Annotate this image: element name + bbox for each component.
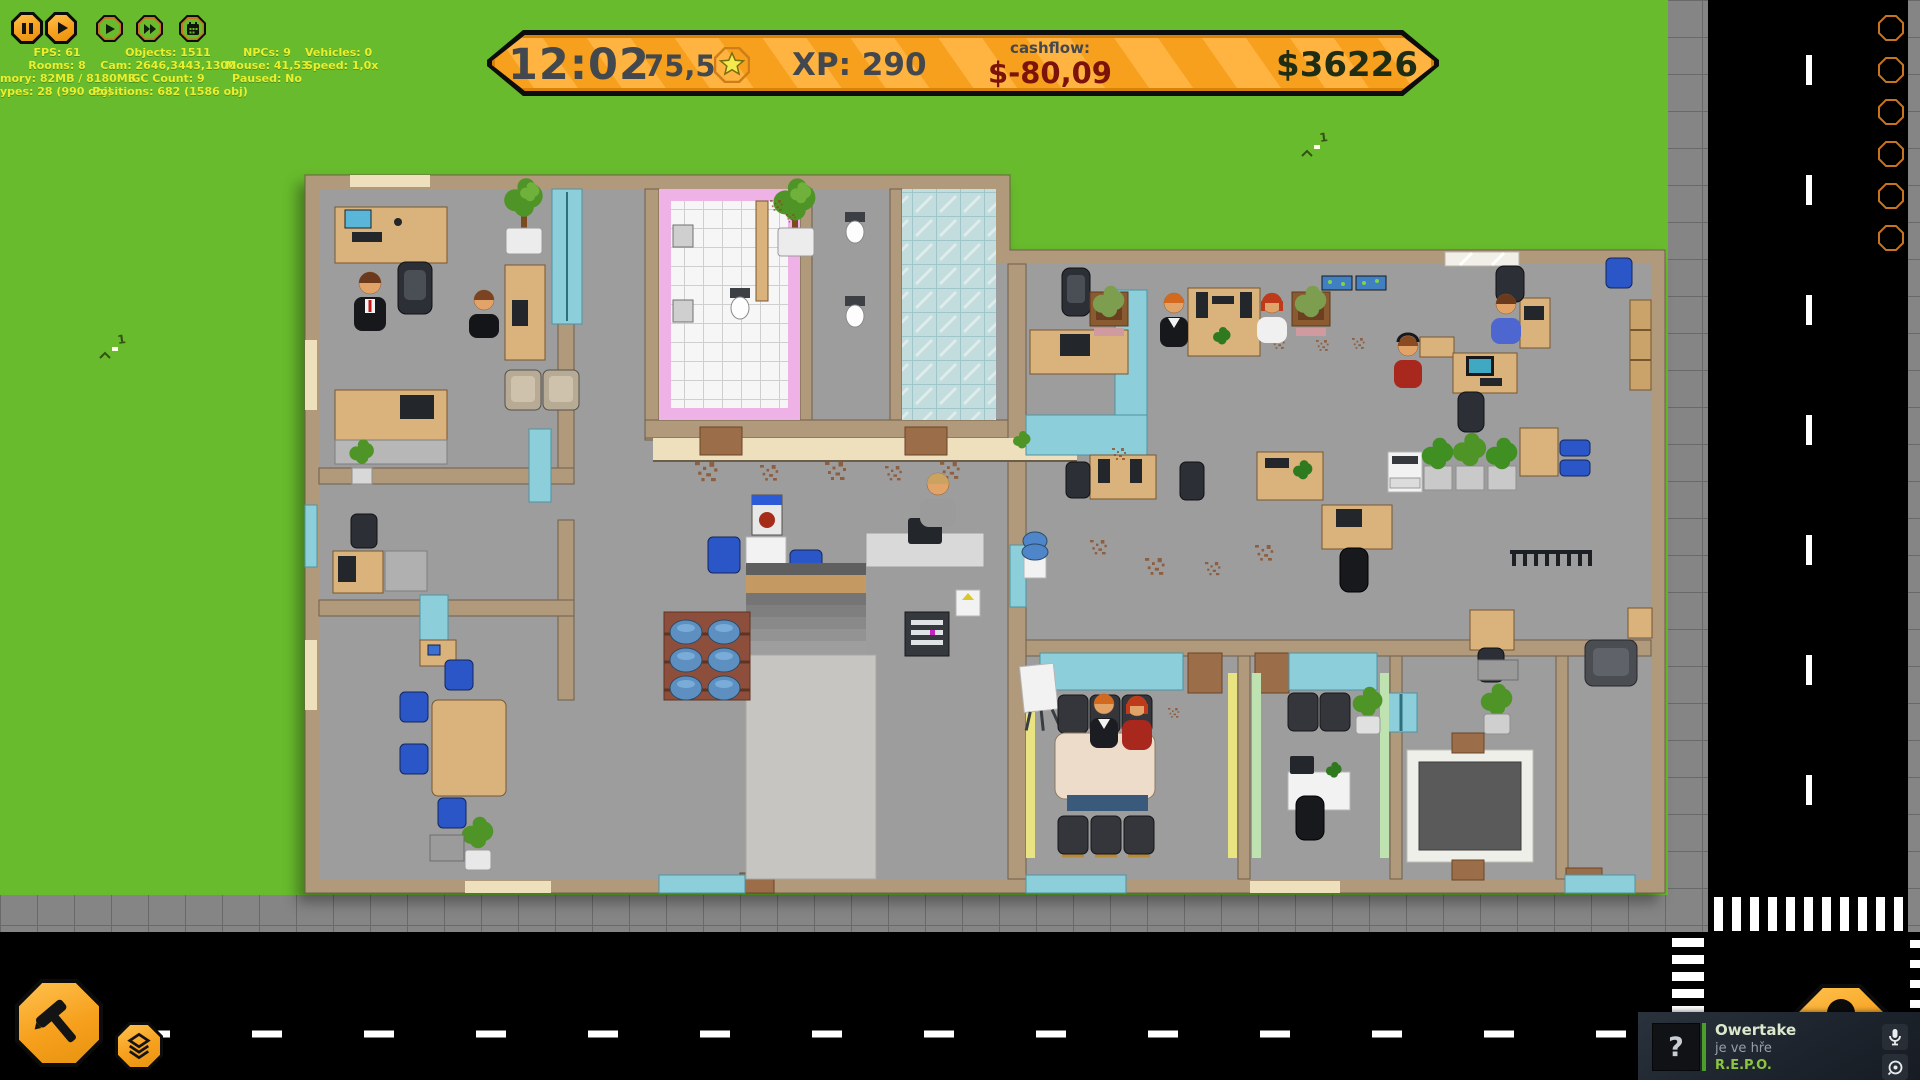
layers-button[interactable] [115, 1022, 163, 1070]
calendar-button[interactable] [179, 15, 206, 42]
debug-positions: Positions: 682 (1586 obj) [92, 85, 248, 98]
bathroom-glass[interactable] [902, 189, 996, 420]
aquarium[interactable] [1356, 276, 1386, 290]
game-screen: 1 1 [0, 0, 1920, 1080]
aquarium[interactable] [1322, 276, 1352, 290]
friend-status: je ve hře [1715, 1041, 1772, 1056]
friend-game: R.E.P.O. [1715, 1058, 1772, 1073]
sidewalk-right-edge [1908, 0, 1920, 932]
hammer-icon [19, 983, 99, 1063]
voice-chat-icon[interactable] [1882, 1054, 1908, 1080]
bathroom-pink[interactable] [659, 189, 800, 420]
debug-npcs: NPCs: 9 [243, 46, 291, 59]
fast-forward-button[interactable] [96, 15, 123, 42]
debug-objects: Objects: 1511 [125, 46, 211, 59]
play-icon [48, 15, 74, 41]
friend-name: Owertake [1715, 1021, 1796, 1039]
debug-cam: Cam: 2646,3443,1300 [100, 59, 235, 72]
rating-star-icon[interactable] [714, 47, 750, 87]
debug-speed: Speed: 1,0x [305, 59, 378, 72]
printer[interactable] [1388, 452, 1422, 492]
road-ring [1878, 15, 1904, 41]
debug-memory: mory: 82MB / 8180MB [0, 72, 136, 85]
calendar-icon [183, 19, 203, 39]
avatar[interactable]: ? [1652, 1023, 1700, 1071]
cashflow-value: $-80,09 [970, 56, 1130, 90]
build-button[interactable] [15, 979, 103, 1067]
game-world: 1 1 [0, 0, 1920, 1080]
clock: 12:02 [508, 40, 650, 90]
road-ring [1878, 57, 1904, 83]
sidewalk-vertical [1668, 0, 1708, 932]
road-ring [1878, 183, 1904, 209]
door[interactable] [905, 427, 947, 455]
hud-banner: 12:02 75,5 XP: 290 cashflow: $-80,09 $36… [487, 30, 1439, 96]
debug-fps: FPS: 61 [33, 46, 80, 59]
fast-forward-2-icon [140, 19, 160, 39]
sidewalk-bottom [0, 895, 1708, 932]
road-ring [1878, 99, 1904, 125]
npc-meeting-man[interactable] [1090, 694, 1118, 748]
water-cooler[interactable] [1022, 532, 1048, 578]
npc-meeting-woman[interactable] [1122, 696, 1152, 750]
debug-mouse: Mouse: 41,53 [225, 59, 308, 72]
door[interactable] [1188, 653, 1222, 693]
layers-icon [118, 1025, 160, 1067]
server-rack[interactable] [905, 612, 949, 656]
play-button[interactable] [45, 12, 77, 44]
door[interactable] [700, 427, 742, 455]
debug-gc: GC Count: 9 [131, 72, 204, 85]
npc-suit-orange-hair[interactable] [1160, 293, 1188, 347]
pause-icon [14, 15, 40, 41]
debug-vehicles: Vehicles: 0 [305, 46, 372, 59]
road-ring [1878, 225, 1904, 251]
office-building[interactable] [305, 175, 1665, 893]
fast-forward-icon [100, 19, 120, 39]
rating-value: 75,5 [644, 49, 716, 83]
cashflow-label: cashflow: [970, 39, 1130, 57]
stairs[interactable] [746, 563, 876, 879]
fast-forward-2-button[interactable] [136, 15, 163, 42]
water-jug-pallet[interactable] [664, 612, 750, 700]
balance-value: $36226 [1276, 45, 1418, 85]
microphone-icon[interactable] [1882, 1024, 1908, 1050]
pause-button[interactable] [11, 12, 43, 44]
debug-rooms: Rooms: 8 [28, 59, 85, 72]
debug-paused: Paused: No [232, 72, 302, 85]
xp-value: XP: 290 [792, 47, 927, 83]
status-accent-bar [1702, 1023, 1706, 1071]
road-ring [1878, 141, 1904, 167]
steam-notification[interactable]: ? Owertake je ve hře R.E.P.O. [1638, 1012, 1920, 1080]
